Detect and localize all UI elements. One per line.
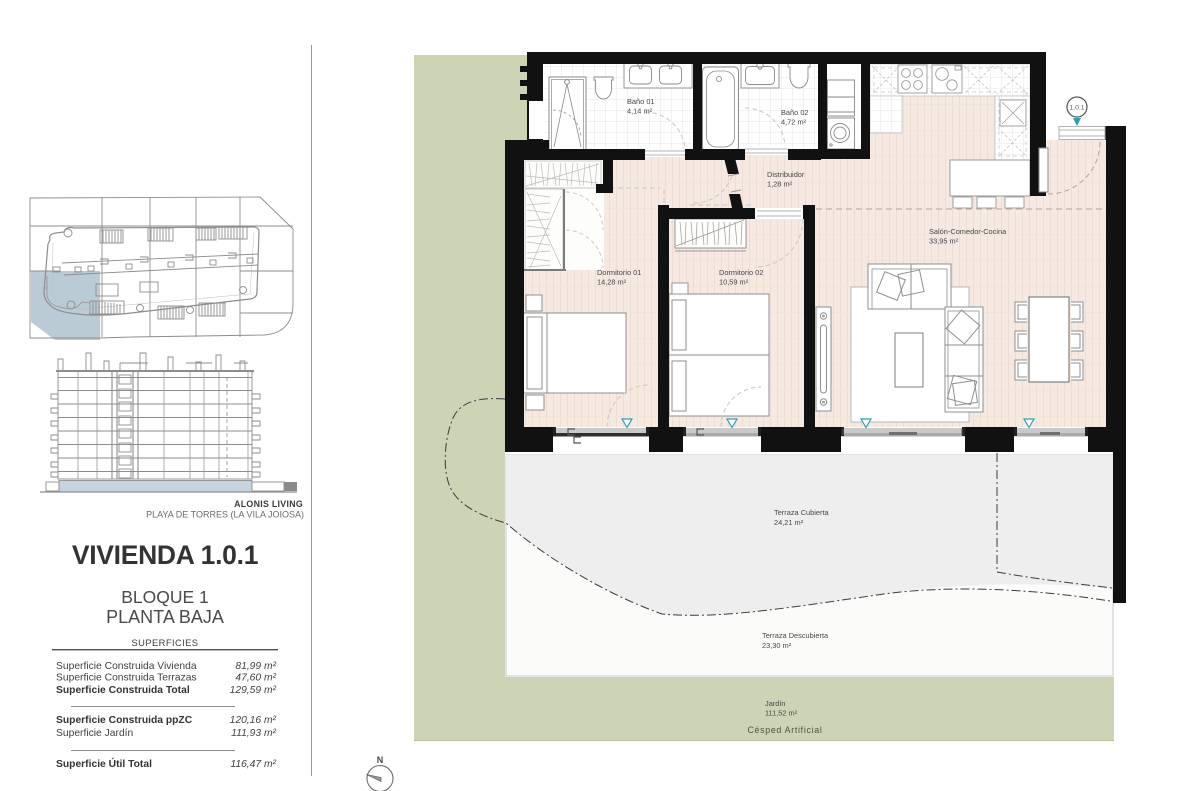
svg-text:PLAYA DE TORRES (LA VILA JOIOS: PLAYA DE TORRES (LA VILA JOIOSA) [146, 510, 304, 520]
svg-text:Superficie Construida Terrazas: Superficie Construida Terrazas [56, 673, 197, 684]
svg-text:PLANTA BAJA: PLANTA BAJA [106, 607, 224, 627]
svg-text:Superficie Construida Total: Superficie Construida Total [56, 685, 190, 696]
svg-text:VIVIENDA 1.0.1: VIVIENDA 1.0.1 [72, 540, 258, 570]
svg-text:24,21 m²: 24,21 m² [774, 518, 804, 527]
svg-text:81,99 m²: 81,99 m² [235, 661, 276, 672]
svg-text:ALONIS LIVING: ALONIS LIVING [234, 499, 303, 509]
svg-text:129,59 m²: 129,59 m² [230, 685, 277, 696]
svg-text:47,60 m²: 47,60 m² [235, 673, 276, 684]
svg-text:Dormitorio 01: Dormitorio 01 [597, 268, 641, 277]
svg-text:120,16 m²: 120,16 m² [230, 715, 277, 726]
svg-text:10,59 m²: 10,59 m² [719, 278, 749, 287]
svg-text:N: N [377, 755, 384, 765]
svg-text:Superficie Construida Vivienda: Superficie Construida Vivienda [56, 661, 197, 672]
svg-text:4,14 m²: 4,14 m² [627, 107, 653, 116]
svg-text:Césped Artificial: Césped Artificial [748, 725, 823, 735]
svg-text:4,72 m²: 4,72 m² [781, 118, 807, 127]
svg-text:111,52 m²: 111,52 m² [765, 709, 798, 718]
svg-text:Salón-Comedor-Cocina: Salón-Comedor-Cocina [929, 227, 1007, 236]
svg-text:Baño 02: Baño 02 [781, 108, 809, 117]
svg-text:Terraza Cubierta: Terraza Cubierta [774, 508, 830, 517]
svg-text:Distribuidor: Distribuidor [767, 170, 805, 179]
svg-text:Dormitorio 02: Dormitorio 02 [719, 268, 763, 277]
svg-text:116,47 m²: 116,47 m² [230, 759, 276, 770]
svg-text:1.0.1: 1.0.1 [1069, 105, 1084, 112]
svg-text:111,93 m²: 111,93 m² [231, 728, 276, 739]
svg-text:23,30 m²: 23,30 m² [762, 641, 792, 650]
svg-text:14,28 m²: 14,28 m² [597, 278, 627, 287]
svg-text:Superficie Jardín: Superficie Jardín [56, 728, 134, 739]
svg-text:Baño 01: Baño 01 [627, 97, 655, 106]
svg-text:Superficie Construida ppZC: Superficie Construida ppZC [56, 715, 193, 726]
svg-text:Jardín: Jardín [765, 699, 786, 708]
svg-text:SUPERFICIES: SUPERFICIES [132, 637, 199, 648]
svg-text:33,95 m²: 33,95 m² [929, 237, 959, 246]
svg-text:Superficie Útil Total: Superficie Útil Total [56, 757, 152, 770]
svg-text:BLOQUE 1: BLOQUE 1 [121, 587, 209, 607]
svg-text:1,28 m²: 1,28 m² [767, 180, 793, 189]
svg-text:Terraza Descubierta: Terraza Descubierta [762, 631, 829, 640]
